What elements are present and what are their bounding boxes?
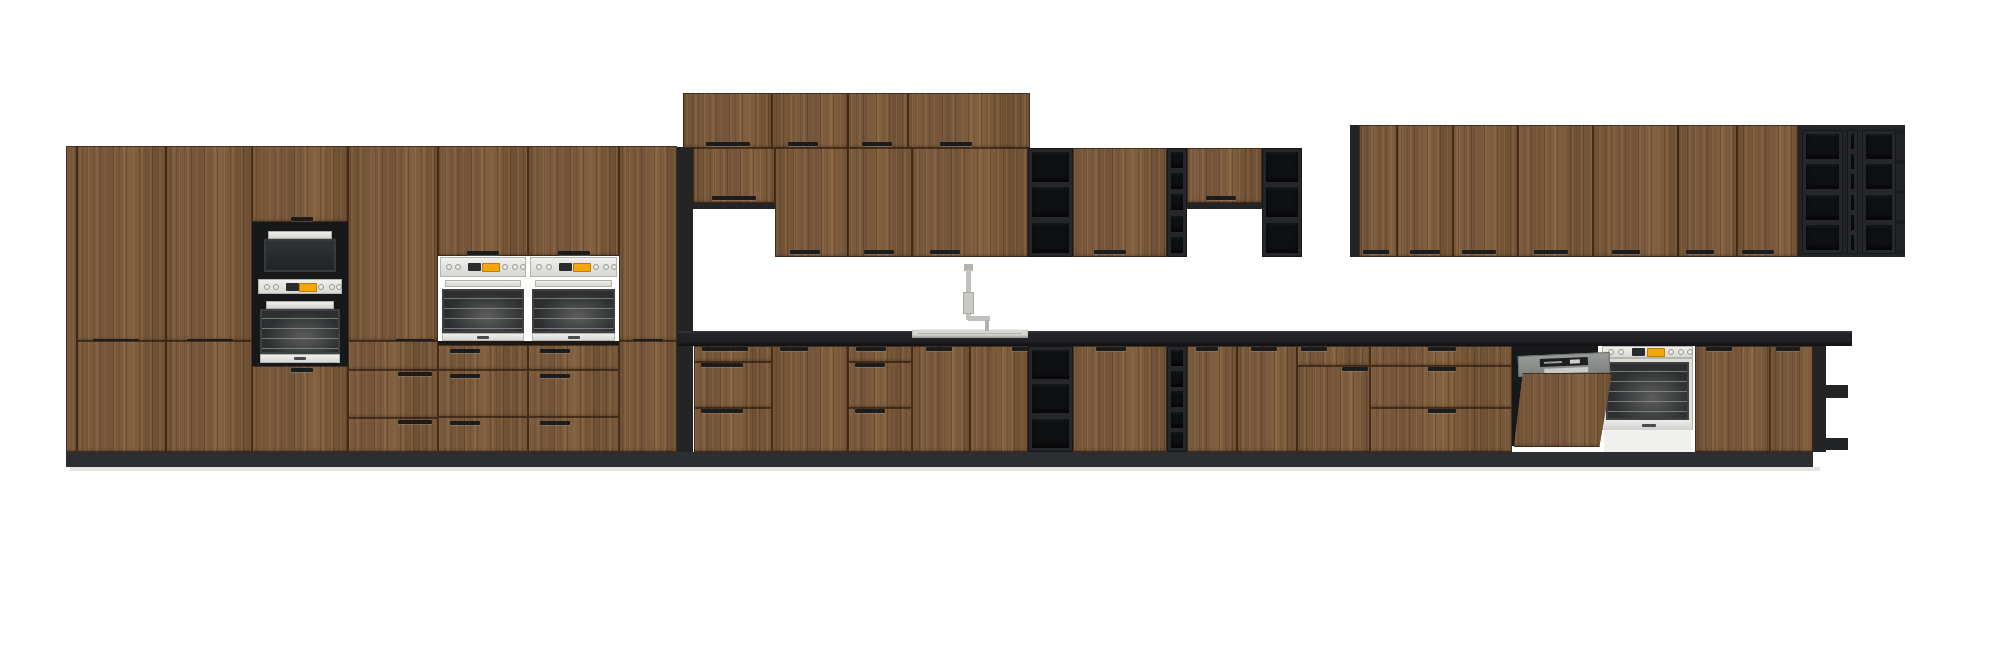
door-handle (712, 196, 756, 200)
base-open-shelf-1[interactable] (1028, 346, 1073, 452)
wall-door-wide[interactable] (912, 148, 1028, 257)
faucet[interactable] (960, 264, 990, 331)
sink-basin-line (918, 333, 1022, 334)
oven-bottom-trim (260, 354, 340, 363)
faucet-outlet (985, 320, 989, 331)
oven-logo (294, 357, 306, 360)
open-shelf-cell (1032, 419, 1069, 448)
drawer-handle (540, 421, 570, 425)
door-handle (1206, 196, 1236, 200)
oven-dial-icon (502, 264, 508, 270)
oven-temp-display (573, 263, 591, 272)
drawer-handle (1301, 347, 1327, 351)
wall-door-short-2-lip (1187, 203, 1262, 209)
right-wall-edge (1350, 125, 1359, 257)
open-shelf-cell (1266, 187, 1298, 217)
oven-logo (568, 336, 580, 339)
base-door-3[interactable] (1187, 346, 1237, 452)
drawer-handle (450, 349, 480, 353)
oven-clock-display (468, 263, 481, 271)
base-door-2[interactable] (1073, 346, 1167, 452)
oven-dial-icon (1687, 349, 1693, 355)
open-shelf-cell (1171, 412, 1183, 428)
oven-door-glass (1606, 362, 1689, 420)
oven-bottom-trim (442, 333, 524, 341)
oven-tower-drawers[interactable] (438, 345, 528, 452)
open-shelf-cell (1032, 350, 1069, 379)
door-handle (1776, 347, 1800, 351)
base-door-5[interactable] (1695, 346, 1770, 452)
open-shelf-cell (1171, 173, 1183, 189)
open-shelf-cell (1171, 350, 1183, 366)
door-handle (291, 368, 313, 372)
door-handle (558, 251, 590, 255)
door-handle (1742, 250, 1774, 254)
oven-handle-bar (445, 280, 521, 287)
cubby-shelf-tip (1896, 250, 1905, 254)
wall-door-2[interactable] (848, 148, 912, 257)
door-handle (790, 250, 820, 254)
tower-bottom-door[interactable] (252, 366, 348, 452)
dishwasher-wood-panel[interactable] (1514, 373, 1612, 447)
drawer-front (694, 362, 772, 408)
open-shelf-cell (1032, 223, 1069, 253)
drawer-front (1370, 366, 1512, 408)
open-shelf-cell (1171, 237, 1183, 253)
oven-logo (477, 336, 489, 339)
oven-dial-icon (318, 284, 324, 290)
dishwasher-label-text (1544, 361, 1562, 364)
door-handle (780, 347, 808, 351)
open-shelf-cell (1806, 164, 1839, 189)
drawer-handle (1428, 367, 1456, 371)
right-wall-door-2[interactable] (1397, 125, 1453, 257)
top-cabinet-door-2[interactable] (772, 93, 848, 148)
oven-handle-bar (535, 280, 612, 287)
sink-base-door-right[interactable] (970, 346, 1028, 452)
drawer-handle (701, 409, 743, 413)
base-door-6[interactable] (1770, 346, 1813, 452)
end-shelf-side-panel (1813, 346, 1826, 452)
cubby-shelf-tip (1896, 190, 1905, 194)
open-shelf-cell (1171, 216, 1183, 232)
oven-temp-display (299, 283, 317, 292)
open-shelf-cell (1171, 194, 1183, 210)
cubby-shelf-tip (1896, 130, 1905, 134)
oven-clock-display (286, 283, 299, 291)
base-drawers-3[interactable] (1370, 346, 1512, 452)
floor-shadow (70, 467, 1820, 471)
wall-open-shelf-1[interactable] (1028, 148, 1073, 257)
door-handle (930, 250, 960, 254)
oven-dial-icon (329, 284, 335, 290)
open-shelf-cell (1851, 215, 1854, 230)
right-wall-door-4[interactable] (1518, 125, 1593, 257)
right-wall-door-7[interactable] (1737, 125, 1798, 257)
open-shelf-cell (1266, 152, 1298, 182)
oven-dial-icon (536, 264, 542, 270)
open-shelf-cell (1032, 187, 1069, 217)
oven-door-glass[interactable] (260, 309, 340, 354)
drawer-front (848, 362, 912, 408)
oven-dial-icon (1618, 349, 1624, 355)
door-handle (1706, 347, 1732, 351)
drawer-handle (702, 347, 748, 351)
open-shelf-cell (1866, 225, 1892, 250)
door-handle (1094, 250, 1126, 254)
tall-door-g-upper[interactable] (619, 146, 677, 341)
oven-dial-icon (1668, 349, 1674, 355)
wall-door-short-1-lip (693, 203, 775, 209)
oven-control-panel[interactable] (530, 257, 617, 277)
oven-dial-icon (611, 264, 617, 270)
oven-dial-icon (546, 264, 552, 270)
oven-door-glass[interactable] (532, 289, 615, 333)
drawer-handle (450, 374, 480, 378)
oven-dial-icon (446, 264, 452, 270)
oven-dial-icon (520, 264, 526, 270)
base-drawers-2[interactable] (848, 346, 912, 452)
drawer-handle (856, 347, 886, 351)
microwave-handle-bar (268, 231, 332, 239)
tall-drawers-d[interactable] (348, 341, 438, 452)
drawer-front (348, 370, 438, 418)
oven-door-frame[interactable] (1602, 358, 1693, 430)
base-door-4[interactable] (1237, 346, 1297, 452)
drawer-front (348, 341, 438, 370)
tall-door-a-lower[interactable] (77, 341, 166, 452)
oven-dial-icon (336, 284, 342, 290)
plinth (66, 452, 1813, 467)
oven-bottom-trim (1604, 420, 1691, 430)
drawer-handle (450, 421, 480, 425)
wall-door-3[interactable] (1073, 148, 1167, 257)
door-handle (1410, 250, 1440, 254)
oven-under-gap (1604, 430, 1691, 452)
cubby-shelf-tip (1896, 160, 1905, 164)
open-shelf-cell (1171, 152, 1183, 168)
countertop (678, 331, 1852, 346)
door-handle (1096, 347, 1126, 351)
base-open-shelf-narrow[interactable] (1167, 346, 1187, 452)
top-cabinet-door-1[interactable] (683, 93, 772, 148)
oven-dial-icon (455, 264, 461, 270)
door-handle (864, 250, 894, 254)
oven-handle-bar (266, 301, 334, 309)
right-wall-door-1[interactable] (1359, 125, 1397, 257)
door-handle (1251, 347, 1277, 351)
door-handle (1462, 250, 1496, 254)
dishwasher-display (1570, 359, 1580, 363)
oven-temp-display (1647, 348, 1665, 357)
drawer-front (848, 408, 912, 452)
right-wall-cubby-col-3[interactable] (1862, 130, 1896, 254)
wall-door-1[interactable] (775, 148, 848, 257)
drawer-handle (398, 372, 432, 376)
top-cabinet-door-3[interactable] (848, 93, 908, 148)
right-wall-cubby-col-2[interactable] (1847, 130, 1858, 254)
drawer-handle (1428, 409, 1456, 413)
oven-dial-icon (264, 284, 270, 290)
tall-door-d-upper[interactable] (348, 146, 438, 341)
drawer-front (694, 408, 772, 452)
base-drawers-1[interactable] (694, 346, 772, 452)
oven-dial-icon (512, 264, 518, 270)
sink-base-door-left[interactable] (912, 346, 970, 452)
door-handle (1342, 367, 1368, 371)
tall-run-end-panel (677, 147, 693, 452)
drawer-handle (398, 420, 432, 424)
dishwasher-control-strip (1540, 357, 1588, 367)
wall-door-short-1[interactable] (693, 148, 775, 203)
open-shelf-cell (1866, 164, 1892, 189)
open-shelf-cell (1171, 371, 1183, 387)
end-shelf-board-2 (1826, 438, 1848, 450)
door-handle (940, 142, 972, 146)
open-shelf-cell (1851, 154, 1854, 169)
open-shelf-cell (1032, 384, 1069, 413)
right-wall-door-3[interactable] (1453, 125, 1518, 257)
drawer-handle (1428, 347, 1456, 351)
base-combo-drawer[interactable] (1297, 346, 1370, 366)
open-shelf-cell (1171, 432, 1183, 448)
oven-dial-icon (603, 264, 609, 270)
open-shelf-cell (1032, 152, 1069, 182)
door-handle (1196, 347, 1218, 351)
oven-control-panel[interactable] (1602, 346, 1693, 358)
kitchen-elevation-render (0, 0, 2000, 662)
tower-top-door[interactable] (528, 146, 619, 256)
dishwasher-handle-slot (1544, 367, 1588, 374)
right-wall-cubby-col-1[interactable] (1802, 130, 1843, 254)
oven-tower-drawers[interactable] (528, 345, 619, 452)
base-door-1[interactable] (772, 346, 848, 452)
open-shelf-cell (1866, 134, 1892, 159)
tall-door-a-upper[interactable] (77, 146, 166, 341)
drawer-handle (701, 363, 743, 367)
open-shelf-cell (1851, 134, 1854, 149)
open-shelf-cell (1806, 134, 1839, 159)
open-shelf-cell (1266, 223, 1298, 253)
drawer-handle (540, 374, 570, 378)
oven-temp-display (482, 263, 500, 272)
oven-clock-display (1632, 348, 1645, 356)
wall-open-shelf-2[interactable] (1262, 148, 1302, 257)
end-shelf-board-1 (1826, 385, 1848, 398)
open-shelf-cell (1171, 391, 1183, 407)
right-wall-door-5[interactable] (1593, 125, 1678, 257)
open-shelf-cell (1866, 195, 1892, 220)
oven-logo (1642, 424, 1656, 427)
microwave-control-panel[interactable] (258, 279, 342, 294)
oven-door-glass[interactable] (442, 289, 524, 333)
tall-run-left-filler (66, 146, 77, 452)
door-handle (1612, 250, 1640, 254)
door-handle (706, 142, 750, 146)
oven-dial-icon (273, 284, 279, 290)
open-shelf-cell (1851, 235, 1854, 250)
open-shelf-cell (1806, 195, 1839, 220)
top-cabinet-door-4[interactable] (908, 93, 1030, 148)
drawer-handle (855, 363, 885, 367)
door-handle (1363, 250, 1389, 254)
drawer-front (1370, 408, 1512, 452)
faucet-body (963, 292, 974, 314)
tower-top-door[interactable] (252, 146, 348, 222)
open-shelf-cell (1851, 195, 1854, 210)
door-handle (788, 142, 818, 146)
microwave-door-glass[interactable] (264, 239, 336, 272)
door-handle (862, 142, 892, 146)
right-wall-door-6[interactable] (1678, 125, 1737, 257)
tall-door-g-lower[interactable] (619, 341, 677, 452)
oven-clock-display (559, 263, 572, 271)
oven-control-panel[interactable] (440, 257, 526, 277)
door-handle (467, 251, 499, 255)
oven-dial-icon (1678, 349, 1684, 355)
door-handle (926, 347, 952, 351)
wall-door-short-2[interactable] (1187, 148, 1262, 203)
base-combo-door[interactable] (1297, 366, 1370, 452)
door-handle (1534, 250, 1568, 254)
door-handle (1686, 250, 1714, 254)
open-shelf-cell (1806, 225, 1839, 250)
tower-top-door[interactable] (438, 146, 528, 256)
door-handle (291, 217, 313, 221)
oven-dial-icon (593, 264, 599, 270)
tall-door-b-upper[interactable] (166, 146, 252, 341)
oven-bottom-trim (532, 333, 615, 341)
drawer-handle (540, 349, 570, 353)
drawer-handle (855, 409, 885, 413)
cubby-shelf-tip (1896, 220, 1905, 224)
open-shelf-cell (1851, 174, 1854, 189)
tall-door-b-lower[interactable] (166, 341, 252, 452)
wall-open-shelf-narrow[interactable] (1167, 148, 1187, 257)
